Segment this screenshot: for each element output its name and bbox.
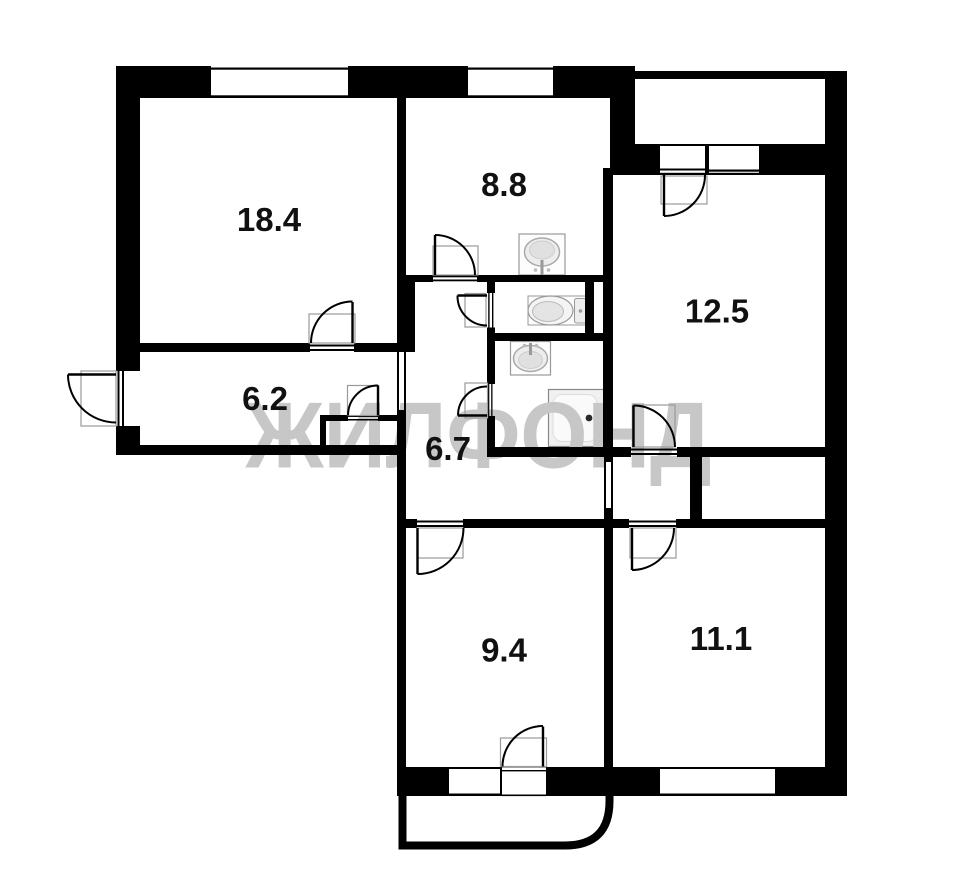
svg-text:8.8: 8.8 bbox=[481, 166, 527, 203]
svg-text:6.2: 6.2 bbox=[242, 380, 288, 417]
svg-text:6.7: 6.7 bbox=[425, 430, 471, 467]
svg-text:18.4: 18.4 bbox=[237, 201, 302, 238]
svg-text:11.1: 11.1 bbox=[690, 620, 752, 657]
svg-text:12.5: 12.5 bbox=[685, 293, 749, 330]
svg-text:ЖИЛФОНД: ЖИЛФОНД bbox=[245, 383, 712, 488]
svg-text:9.4: 9.4 bbox=[481, 632, 528, 669]
